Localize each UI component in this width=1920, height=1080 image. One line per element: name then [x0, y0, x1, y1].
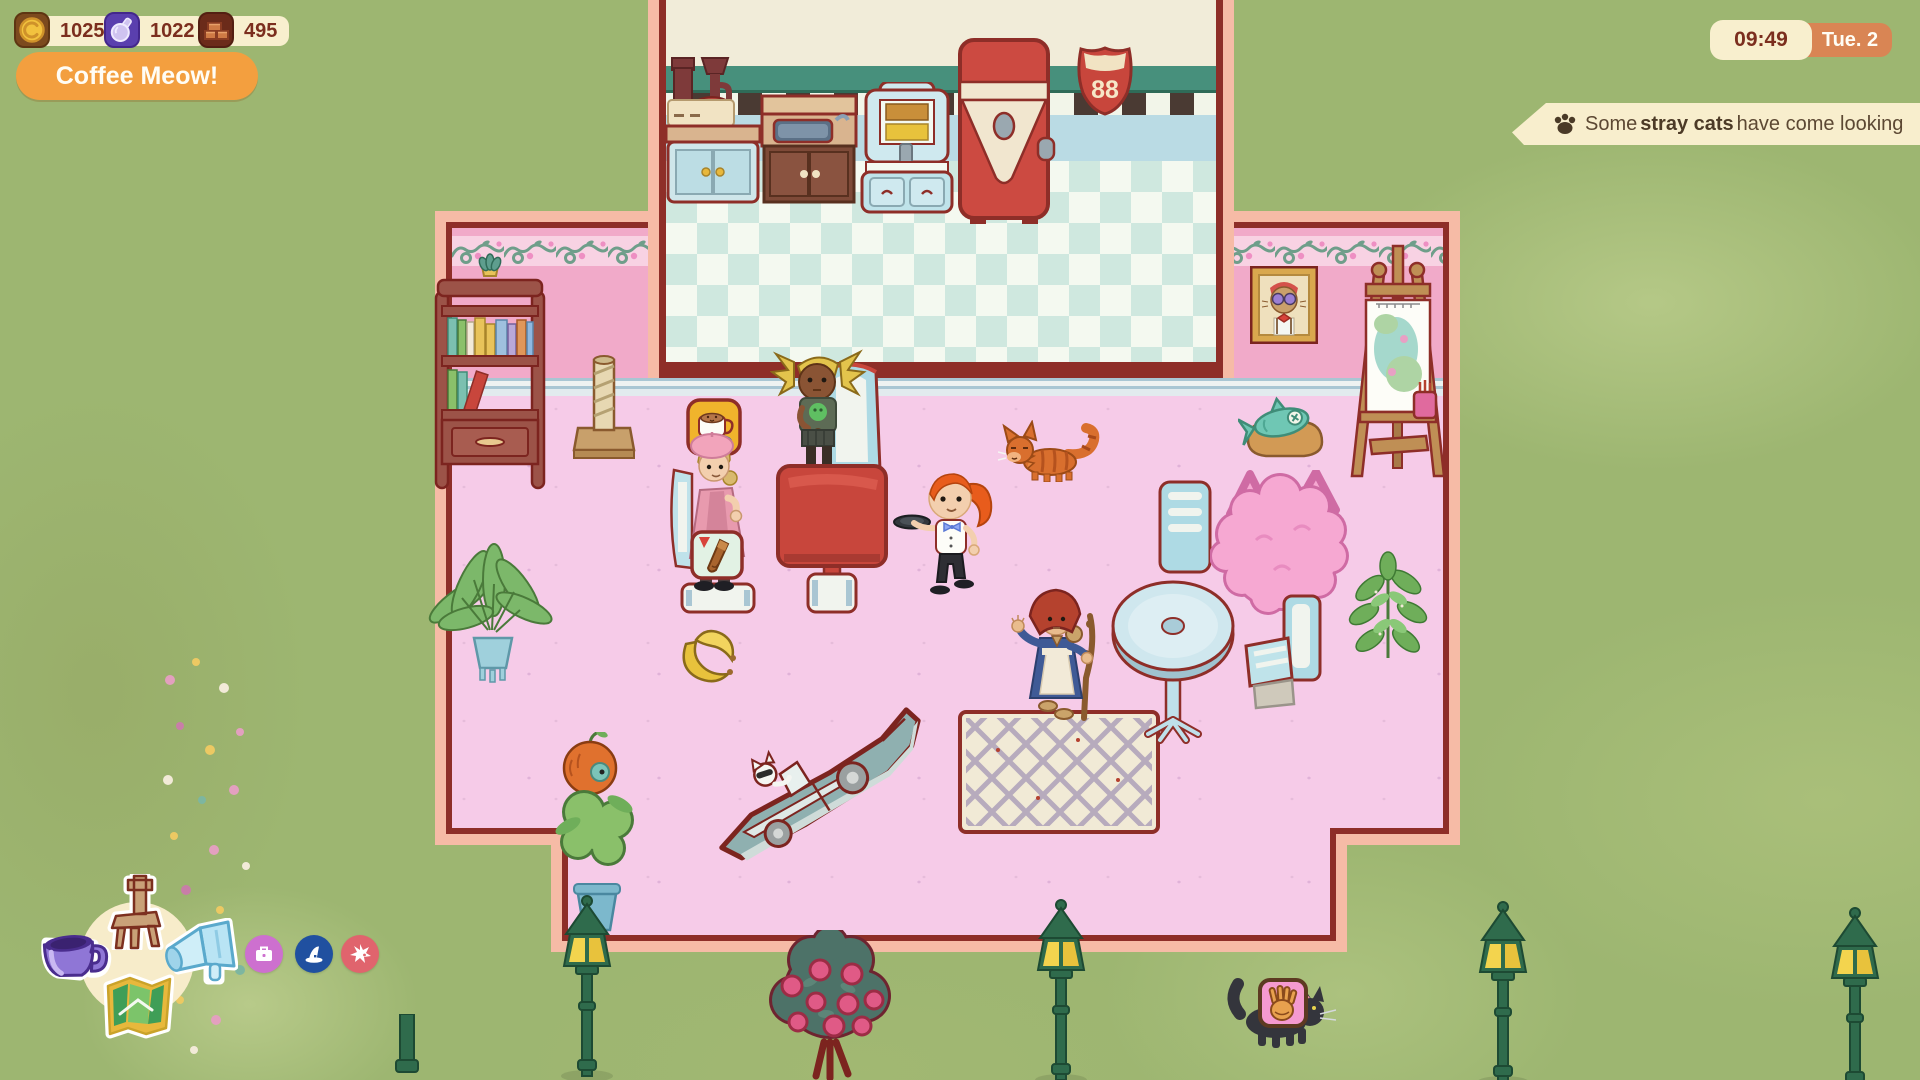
- currency-gold-value: 1025: [60, 20, 105, 43]
- furniture-menu-button[interactable]: [104, 874, 166, 950]
- lamp-post-base: [384, 1014, 432, 1080]
- grandma-customer[interactable]: [1006, 582, 1106, 728]
- events-menu-button[interactable]: [341, 935, 379, 973]
- refrigerator[interactable]: [954, 30, 1058, 224]
- waitress[interactable]: [892, 466, 1020, 616]
- promote-menu-button[interactable]: [164, 918, 238, 988]
- currency-catnip-value: 1022: [150, 20, 195, 43]
- bookshelf[interactable]: [434, 248, 548, 494]
- lamp-post: [554, 894, 620, 1080]
- supplies-menu-button[interactable]: [245, 935, 283, 973]
- notification-prefix: Some: [1585, 113, 1637, 136]
- potted-plant-right[interactable]: [1340, 548, 1438, 674]
- route-sign-label: 88: [1091, 76, 1119, 104]
- car-rug[interactable]: [692, 696, 948, 866]
- cat-portrait[interactable]: [1250, 266, 1318, 344]
- customer-punk[interactable]: [770, 346, 870, 476]
- painting-easel[interactable]: [1346, 244, 1450, 486]
- pet-action-badge[interactable]: [1258, 978, 1308, 1032]
- fish-toy-bed[interactable]: [1238, 392, 1332, 462]
- bricks-icon: [198, 12, 234, 48]
- coin-icon: [14, 12, 50, 48]
- kitchen-sink[interactable]: [760, 94, 858, 206]
- lamp-post: [1470, 900, 1536, 1080]
- coffee-meow-button[interactable]: Coffee Meow!: [16, 52, 258, 100]
- potion-icon: [104, 12, 140, 48]
- briefcase-icon: [253, 943, 275, 965]
- rose-bush: [764, 930, 896, 1080]
- diner-bench[interactable]: [1240, 594, 1326, 712]
- potted-plant-left[interactable]: [422, 542, 556, 694]
- paw-icon: [1552, 112, 1578, 136]
- burst-icon: [349, 943, 371, 965]
- route-88-sign: 88: [1076, 44, 1134, 116]
- clock-time: 09:49: [1710, 20, 1812, 60]
- lamp-post: [1028, 898, 1094, 1080]
- ginger-cat[interactable]: [998, 420, 1102, 482]
- notification-suffix: have come looking: [1737, 113, 1904, 136]
- red-diner-table[interactable]: [774, 462, 892, 622]
- witchcraft-menu-button[interactable]: [295, 935, 333, 973]
- customer-beret-lady[interactable]: [666, 426, 778, 618]
- order-bubble-pastry[interactable]: [690, 530, 744, 580]
- notification-highlight: stray cats: [1640, 113, 1733, 136]
- scratching-post[interactable]: [572, 352, 638, 460]
- espresso-machine[interactable]: [856, 82, 958, 214]
- map-icon: [108, 978, 170, 1034]
- witch-hat-icon: [303, 943, 325, 965]
- currency-materials-value: 495: [244, 20, 277, 43]
- notification-banner: Some stray cats have come looking: [1512, 103, 1920, 145]
- coffee-station[interactable]: [664, 56, 762, 208]
- game-viewport: 88: [0, 0, 1920, 1080]
- lamp-post: [1822, 906, 1888, 1080]
- map-menu-button[interactable]: [100, 970, 174, 1042]
- banana-peel[interactable]: [672, 624, 744, 690]
